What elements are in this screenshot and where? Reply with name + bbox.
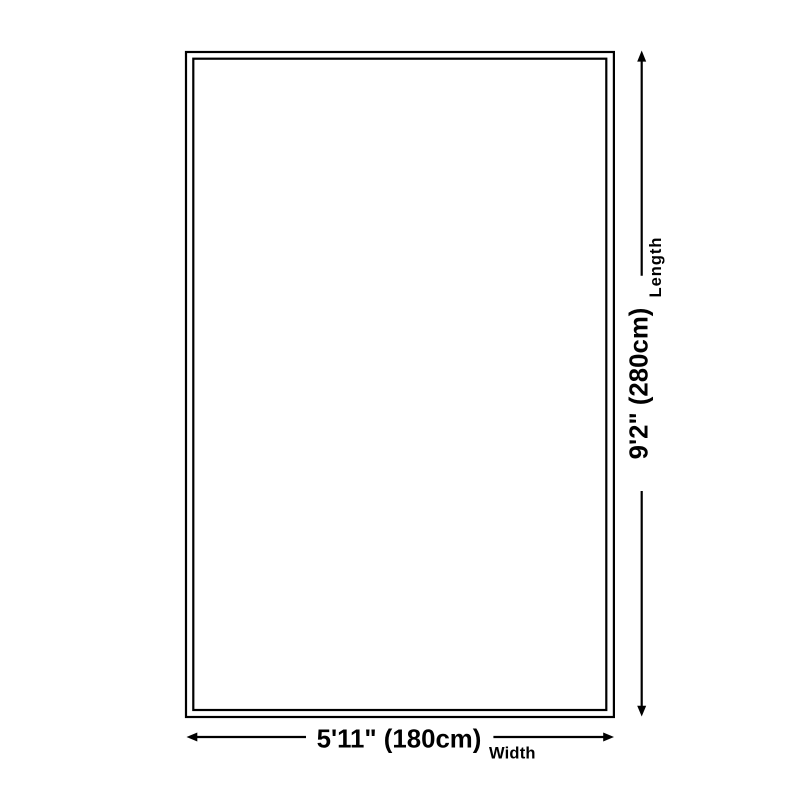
svg-text:9'2" (280cm): 9'2" (280cm) bbox=[626, 308, 654, 460]
svg-text:Length: Length bbox=[647, 237, 665, 298]
svg-text:5'11" (180cm): 5'11" (180cm) bbox=[317, 726, 482, 754]
svg-text:Width: Width bbox=[489, 745, 536, 763]
